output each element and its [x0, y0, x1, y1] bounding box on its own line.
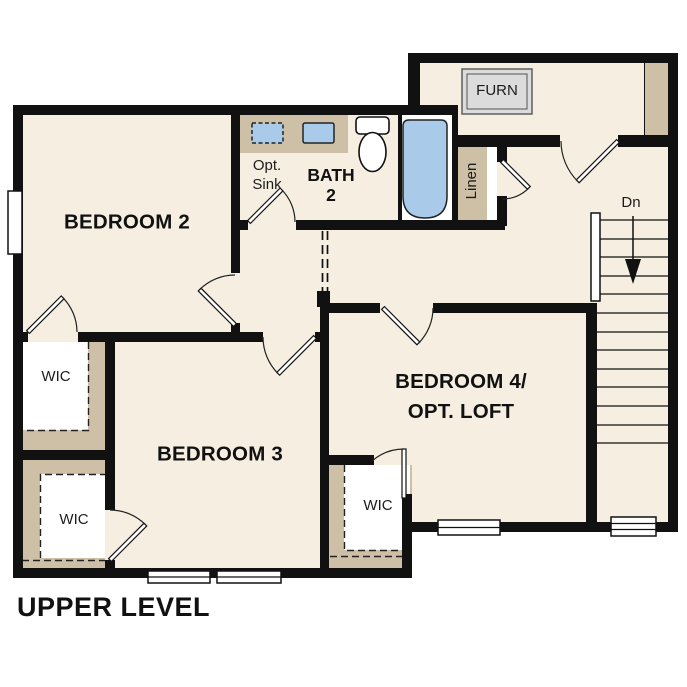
bedroom3-window-right	[217, 571, 281, 583]
toilet-bowl-icon	[359, 133, 386, 172]
bedroom4-label-line2: OPT. LOFT	[395, 397, 527, 427]
bedroom3-label: BEDROOM 3	[157, 444, 283, 467]
opt-sink-label-line1: Opt.	[252, 156, 281, 175]
bedroom2-window	[8, 191, 22, 254]
stair-landing-window	[611, 517, 656, 536]
bedroom4-label-line1: BEDROOM 4/	[395, 367, 527, 397]
opt-sink-label: Opt. Sink	[252, 156, 281, 194]
wic1-core	[22, 342, 88, 430]
floor-plan: BEDROOM 2 BEDROOM 3 BEDROOM 4/ OPT. LOFT…	[0, 0, 687, 687]
bath2-label: BATH 2	[307, 165, 354, 205]
floor-plan-drawing	[0, 0, 687, 687]
bath2-label-line2: 2	[307, 185, 354, 205]
plan-title: UPPER LEVEL	[17, 592, 210, 623]
bedroom3-window-left	[148, 571, 210, 583]
bedroom4-window	[438, 520, 500, 535]
furnace-label: FURN	[476, 83, 518, 100]
bathtub-icon	[403, 120, 447, 218]
opt-sink-icon	[252, 123, 283, 143]
toilet-tank-icon	[356, 117, 389, 134]
opt-sink-label-line2: Sink	[252, 175, 281, 194]
wic-bedroom4-label: WIC	[363, 498, 392, 515]
chase-fill	[644, 63, 668, 135]
linen-label: Linen	[464, 163, 481, 200]
linen-closet-strip	[487, 147, 497, 220]
bath2-label-line1: BATH	[307, 165, 354, 185]
bedroom2-label: BEDROOM 2	[64, 212, 190, 235]
sink-icon	[303, 123, 334, 143]
stairs-down-label: Dn	[621, 195, 640, 212]
bedroom4-label: BEDROOM 4/ OPT. LOFT	[395, 367, 527, 427]
wic-bedroom2-label: WIC	[41, 369, 70, 386]
wic-bedroom3-label: WIC	[59, 512, 88, 529]
stair-handrail	[591, 213, 600, 301]
